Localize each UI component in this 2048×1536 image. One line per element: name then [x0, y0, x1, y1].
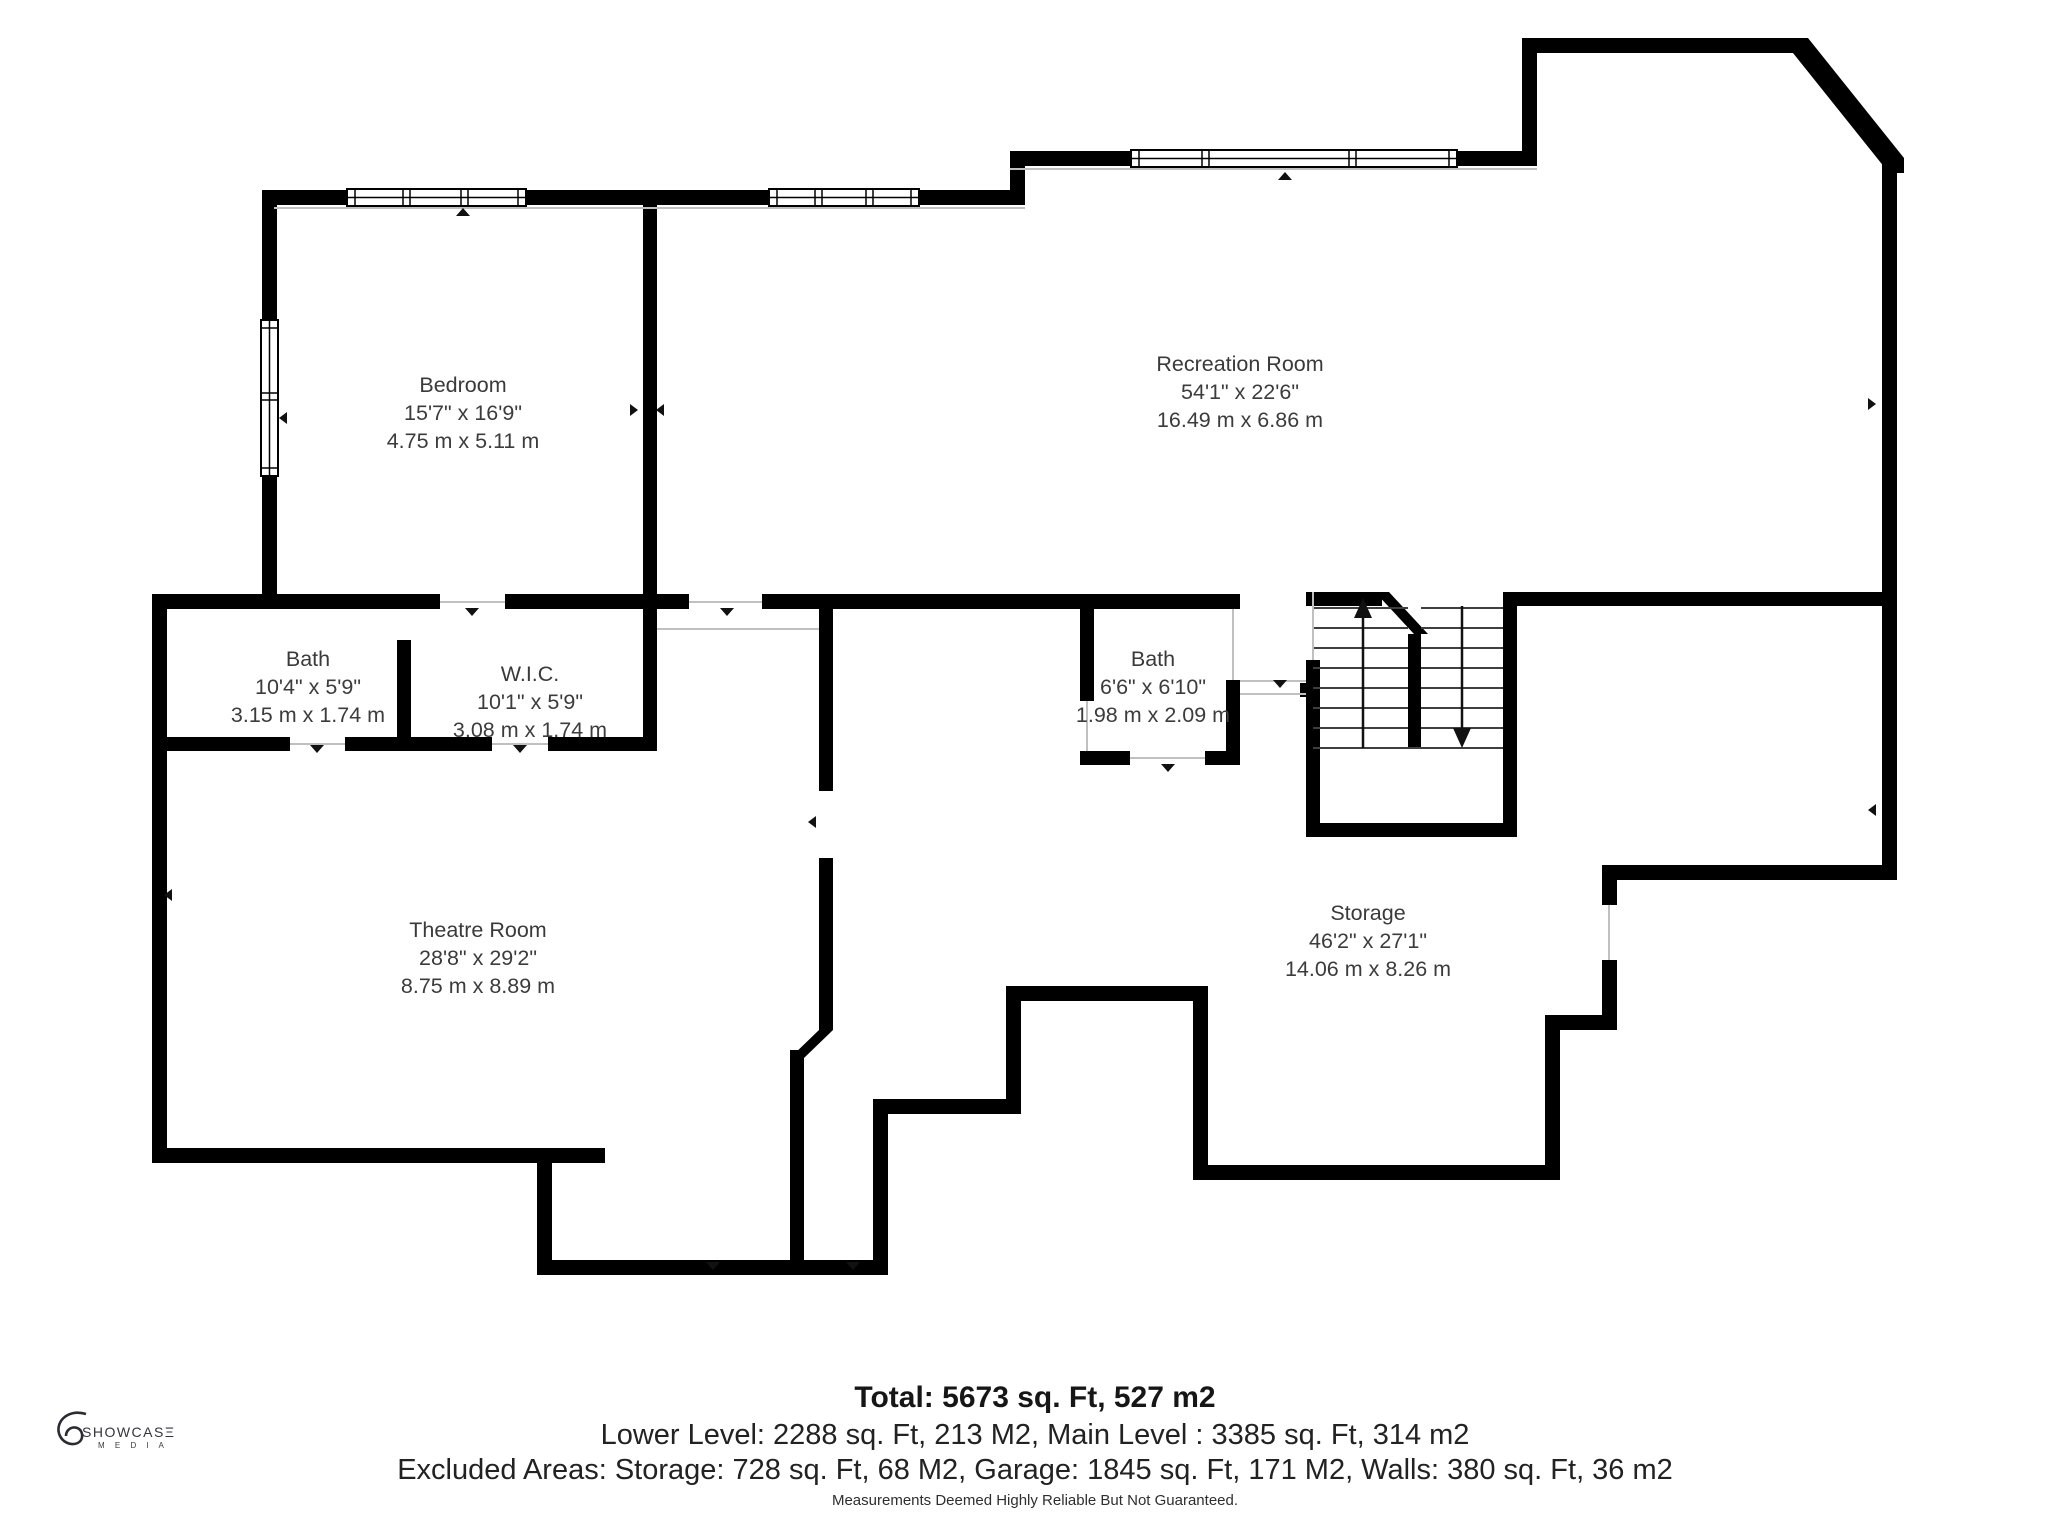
door-marker-left-icon — [656, 404, 664, 416]
room-label-theatre-room: Theatre Room 28'8" x 29'2" 8.75 m x 8.89… — [401, 916, 555, 1000]
door-marker-up-icon — [456, 208, 470, 216]
door-marker-down-icon — [465, 608, 479, 616]
room-name: Bath — [231, 645, 385, 673]
door-marker-up-icon — [1278, 172, 1292, 180]
disclaimer-text: Measurements Deemed Highly Reliable But … — [0, 1490, 2048, 1512]
floor-plan-page: { "colors": { "wall": "#000000", "thin_l… — [0, 0, 2048, 1536]
door-marker-left-icon — [1868, 804, 1876, 816]
door-marker-right-icon — [1868, 398, 1876, 410]
door-marker-left-icon — [808, 816, 816, 828]
room-dims-ft: 28'8" x 29'2" — [401, 944, 555, 972]
door-marker-down-icon — [310, 745, 324, 753]
logo-brand-text: SHOWCASΞ — [82, 1424, 175, 1440]
levels-area-text: Lower Level: 2288 sq. Ft, 213 M2, Main L… — [0, 1418, 2048, 1453]
room-label-storage: Storage 46'2" x 27'1" 14.06 m x 8.26 m — [1285, 899, 1451, 983]
total-area-text: Total: 5673 sq. Ft, 527 m2 — [0, 1378, 2048, 1418]
door-marker-down-icon — [720, 608, 734, 616]
window-recreation-top — [1131, 150, 1457, 167]
threshold-lines — [274, 169, 1609, 960]
room-name: Storage — [1285, 899, 1451, 927]
room-dims-ft: 10'4" x 5'9" — [231, 673, 385, 701]
stair-up-arrow-icon — [1354, 598, 1372, 748]
window-bedroom-top-left — [347, 189, 526, 206]
window-bedroom-top-right — [769, 189, 919, 206]
room-name: Recreation Room — [1156, 350, 1323, 378]
staircase — [1300, 592, 1517, 837]
excluded-area-text: Excluded Areas: Storage: 728 sq. Ft, 68 … — [0, 1453, 2048, 1488]
room-label-recreation-room: Recreation Room 54'1" x 22'6" 16.49 m x … — [1156, 350, 1323, 434]
door-marker-left-icon — [279, 412, 287, 424]
door-marker-down-icon — [513, 745, 527, 753]
outer-walls — [152, 38, 1904, 1275]
room-dims-m: 4.75 m x 5.11 m — [387, 427, 540, 455]
area-summary: Total: 5673 sq. Ft, 527 m2 Lower Level: … — [0, 1378, 2048, 1512]
room-name: Bedroom — [387, 371, 540, 399]
room-dims-ft: 54'1" x 22'6" — [1156, 378, 1323, 406]
room-dims-m: 1.98 m x 2.09 m — [1076, 701, 1230, 729]
room-dims-m: 16.49 m x 6.86 m — [1156, 406, 1323, 434]
floor-plan-svg — [0, 0, 2048, 1536]
room-name: Theatre Room — [401, 916, 555, 944]
showcase-media-logo: SHOWCASΞ M E D I A — [52, 1408, 192, 1478]
door-marker-right-icon — [630, 404, 638, 416]
room-dims-m: 14.06 m x 8.26 m — [1285, 955, 1451, 983]
window-bedroom-left — [261, 320, 278, 476]
room-label-bedroom: Bedroom 15'7" x 16'9" 4.75 m x 5.11 m — [387, 371, 540, 455]
room-dims-ft: 46'2" x 27'1" — [1285, 927, 1451, 955]
room-dims-ft: 10'1" x 5'9" — [453, 688, 607, 716]
room-label-bath-2: Bath 6'6" x 6'10" 1.98 m x 2.09 m — [1076, 645, 1230, 729]
room-name: W.I.C. — [453, 660, 607, 688]
room-name: Bath — [1076, 645, 1230, 673]
door-marker-down-icon — [1273, 680, 1287, 688]
room-dims-m: 8.75 m x 8.89 m — [401, 972, 555, 1000]
door-marker-down-icon — [1161, 764, 1175, 772]
logo-sub-text: M E D I A — [98, 1441, 168, 1450]
room-label-wic: W.I.C. 10'1" x 5'9" 3.08 m x 1.74 m — [453, 660, 607, 744]
room-dims-m: 3.15 m x 1.74 m — [231, 701, 385, 729]
room-label-bath: Bath 10'4" x 5'9" 3.15 m x 1.74 m — [231, 645, 385, 729]
room-dims-m: 3.08 m x 1.74 m — [453, 716, 607, 744]
room-dims-ft: 6'6" x 6'10" — [1076, 673, 1230, 701]
room-dims-ft: 15'7" x 16'9" — [387, 399, 540, 427]
